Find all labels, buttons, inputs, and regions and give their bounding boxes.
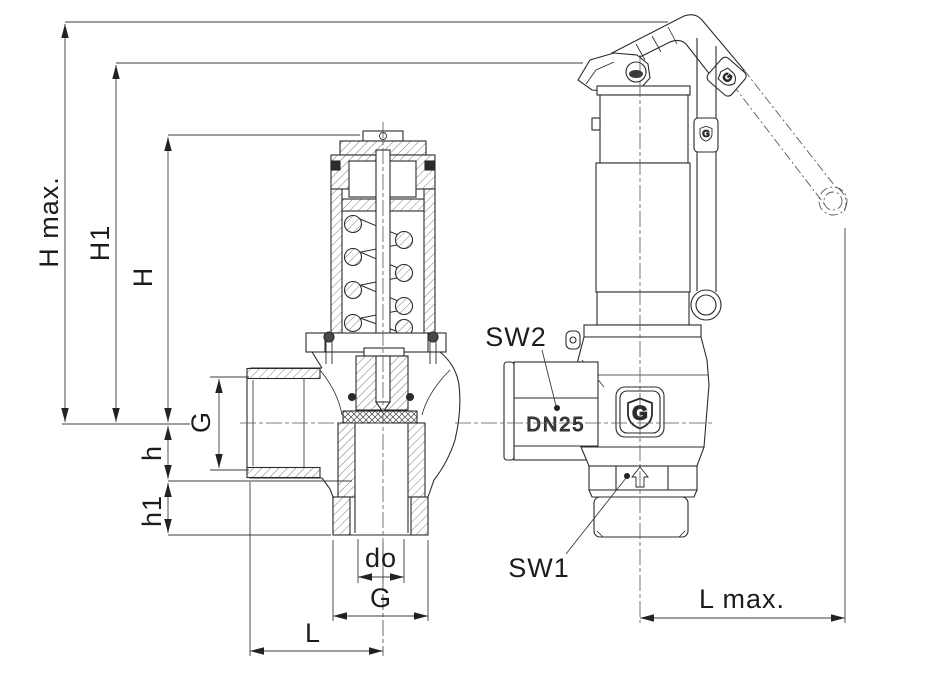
- dim-label-h-small: h: [137, 445, 167, 461]
- outlet-hex-and-thread: [581, 447, 704, 537]
- dim-label-h-max: H max.: [34, 176, 64, 268]
- extension-lines: [62, 22, 845, 656]
- inlet-hex-boss: DN25: [504, 362, 598, 460]
- callout-label-sw1: SW1: [508, 553, 570, 583]
- right-valve-bonnet: [584, 86, 701, 337]
- technical-drawing-canvas: G: [0, 0, 930, 700]
- seat-seal: [343, 411, 417, 423]
- dim-label-l: L: [305, 618, 321, 648]
- dim-label-h1: H1: [85, 225, 115, 262]
- dn25-marking: DN25: [526, 414, 585, 436]
- disc-and-seat: [338, 348, 425, 497]
- callout-label-sw2: SW2: [485, 322, 547, 352]
- dim-label-g-inlet: G: [186, 411, 216, 433]
- outlet-connection: [333, 497, 428, 535]
- dim-label-do: do: [365, 543, 397, 573]
- dim-label-g-outlet: G: [370, 583, 392, 613]
- dimension-lines: [65, 24, 845, 651]
- dim-label-l-max: L max.: [699, 584, 785, 614]
- left-valve-section-view: [240, 122, 460, 590]
- dim-label-h1-small: h1: [137, 495, 167, 527]
- lever-phantom-position: [733, 70, 847, 215]
- right-valve-side-view: DN25: [455, 15, 847, 623]
- dim-label-h: H: [128, 267, 158, 288]
- valve-drawing-svg: G: [0, 0, 930, 700]
